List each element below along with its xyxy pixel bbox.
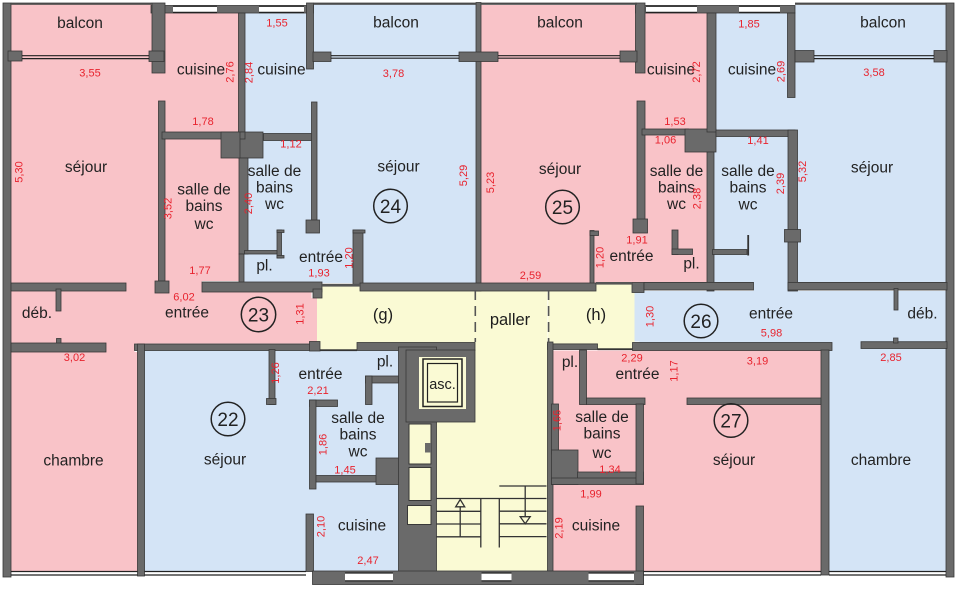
svg-text:balcon: balcon [537, 15, 583, 32]
svg-text:pl.: pl. [562, 354, 578, 371]
svg-text:cuisine: cuisine [572, 518, 620, 535]
svg-text:bains: bains [185, 198, 222, 215]
svg-text:wc: wc [592, 445, 612, 462]
svg-text:cuisine: cuisine [647, 62, 695, 79]
svg-text:wc: wc [348, 444, 368, 461]
svg-text:balcon: balcon [57, 15, 103, 32]
svg-text:cuisine: cuisine [338, 518, 386, 535]
svg-text:24: 24 [380, 197, 402, 218]
svg-text:(g): (g) [373, 306, 393, 324]
svg-text:1,93: 1,93 [308, 268, 329, 280]
svg-text:1,78: 1,78 [192, 116, 213, 128]
svg-text:balcon: balcon [373, 15, 419, 32]
svg-text:entrée: entrée [165, 305, 209, 322]
svg-text:2,47: 2,47 [357, 555, 378, 567]
svg-text:salle de: salle de [177, 182, 230, 199]
svg-text:2,85: 2,85 [880, 352, 901, 364]
svg-text:23: 23 [248, 306, 269, 327]
svg-text:5,23: 5,23 [485, 172, 497, 193]
svg-text:salle de: salle de [248, 163, 301, 180]
svg-text:3,52: 3,52 [163, 198, 175, 219]
svg-text:2,76: 2,76 [225, 61, 237, 82]
svg-text:3,02: 3,02 [64, 352, 85, 364]
svg-text:séjour: séjour [377, 159, 419, 176]
svg-text:1,99: 1,99 [580, 489, 601, 501]
svg-text:2,69: 2,69 [776, 61, 788, 82]
svg-text:1,06: 1,06 [655, 135, 676, 147]
svg-text:chambre: chambre [43, 453, 103, 470]
svg-text:3,78: 3,78 [383, 68, 404, 80]
svg-text:(h): (h) [586, 306, 606, 324]
svg-text:salle de: salle de [575, 409, 628, 426]
svg-text:entrée: entrée [749, 306, 793, 323]
svg-text:salle de: salle de [650, 163, 703, 180]
svg-text:2,84: 2,84 [244, 62, 256, 83]
svg-text:cuisine: cuisine [177, 62, 225, 79]
svg-text:entrée: entrée [610, 248, 654, 265]
svg-text:1,53: 1,53 [664, 116, 685, 128]
svg-text:asc.: asc. [429, 377, 456, 393]
svg-text:séjour: séjour [851, 160, 893, 177]
svg-text:1,31: 1,31 [295, 303, 307, 324]
svg-text:bains: bains [729, 180, 766, 197]
svg-text:5,29: 5,29 [458, 165, 470, 186]
svg-text:séjour: séjour [713, 452, 755, 469]
svg-text:wc: wc [666, 196, 686, 213]
svg-text:2,59: 2,59 [520, 270, 541, 282]
svg-text:chambre: chambre [851, 452, 911, 469]
svg-text:salle de: salle de [721, 163, 774, 180]
svg-text:wc: wc [194, 216, 214, 233]
svg-text:3,55: 3,55 [79, 68, 100, 80]
svg-text:wc: wc [264, 196, 284, 213]
svg-text:2,10: 2,10 [316, 516, 328, 537]
svg-text:5,32: 5,32 [797, 161, 809, 182]
svg-text:25: 25 [552, 198, 573, 219]
svg-text:26: 26 [690, 312, 711, 333]
svg-text:entrée: entrée [299, 366, 343, 383]
svg-text:1,34: 1,34 [599, 464, 620, 476]
svg-text:wc: wc [738, 197, 758, 214]
svg-text:2,38: 2,38 [692, 188, 704, 209]
svg-text:27: 27 [720, 412, 741, 433]
svg-text:séjour: séjour [65, 159, 107, 176]
svg-text:6,02: 6,02 [173, 292, 194, 304]
svg-text:pl.: pl. [377, 354, 393, 371]
svg-text:1,20: 1,20 [344, 247, 356, 268]
svg-text:1,20: 1,20 [595, 247, 607, 268]
svg-text:cuisine: cuisine [728, 62, 776, 79]
svg-text:1,17: 1,17 [669, 360, 681, 381]
svg-text:pl.: pl. [256, 258, 272, 275]
svg-text:1,45: 1,45 [334, 465, 355, 477]
svg-text:balcon: balcon [860, 15, 906, 32]
svg-text:1,91: 1,91 [626, 235, 647, 247]
svg-text:3,19: 3,19 [747, 356, 768, 368]
svg-text:2,19: 2,19 [554, 517, 566, 538]
svg-text:2,40: 2,40 [243, 193, 255, 214]
svg-text:déb.: déb. [22, 305, 52, 322]
svg-text:séjour: séjour [204, 452, 246, 469]
svg-text:2,21: 2,21 [307, 385, 328, 397]
svg-text:2,72: 2,72 [691, 61, 703, 82]
svg-text:pl.: pl. [683, 256, 699, 273]
svg-text:bains: bains [256, 180, 293, 197]
svg-text:déb.: déb. [907, 306, 937, 323]
svg-text:1,55: 1,55 [266, 18, 287, 30]
svg-text:entrée: entrée [616, 366, 660, 383]
svg-text:bains: bains [658, 180, 695, 197]
svg-text:bains: bains [583, 426, 620, 443]
svg-text:salle de: salle de [331, 410, 384, 427]
svg-text:entrée: entrée [299, 249, 343, 266]
svg-text:2,29: 2,29 [621, 353, 642, 365]
svg-text:paller: paller [490, 311, 531, 329]
svg-text:cuisine: cuisine [257, 62, 305, 79]
svg-text:5,30: 5,30 [14, 161, 26, 182]
svg-text:1,26: 1,26 [270, 362, 282, 383]
svg-text:5,98: 5,98 [761, 328, 782, 340]
svg-text:2,39: 2,39 [775, 173, 787, 194]
svg-text:22: 22 [217, 410, 238, 431]
svg-text:1,85: 1,85 [738, 19, 759, 31]
svg-text:3,58: 3,58 [863, 67, 884, 79]
svg-text:séjour: séjour [539, 161, 581, 178]
svg-text:bains: bains [339, 427, 376, 444]
svg-text:1,41: 1,41 [747, 135, 768, 147]
svg-text:1,77: 1,77 [189, 265, 210, 277]
svg-text:1,30: 1,30 [645, 306, 657, 327]
svg-text:1,66: 1,66 [552, 410, 564, 431]
svg-text:1,12: 1,12 [280, 139, 301, 151]
svg-text:1,86: 1,86 [318, 434, 330, 455]
